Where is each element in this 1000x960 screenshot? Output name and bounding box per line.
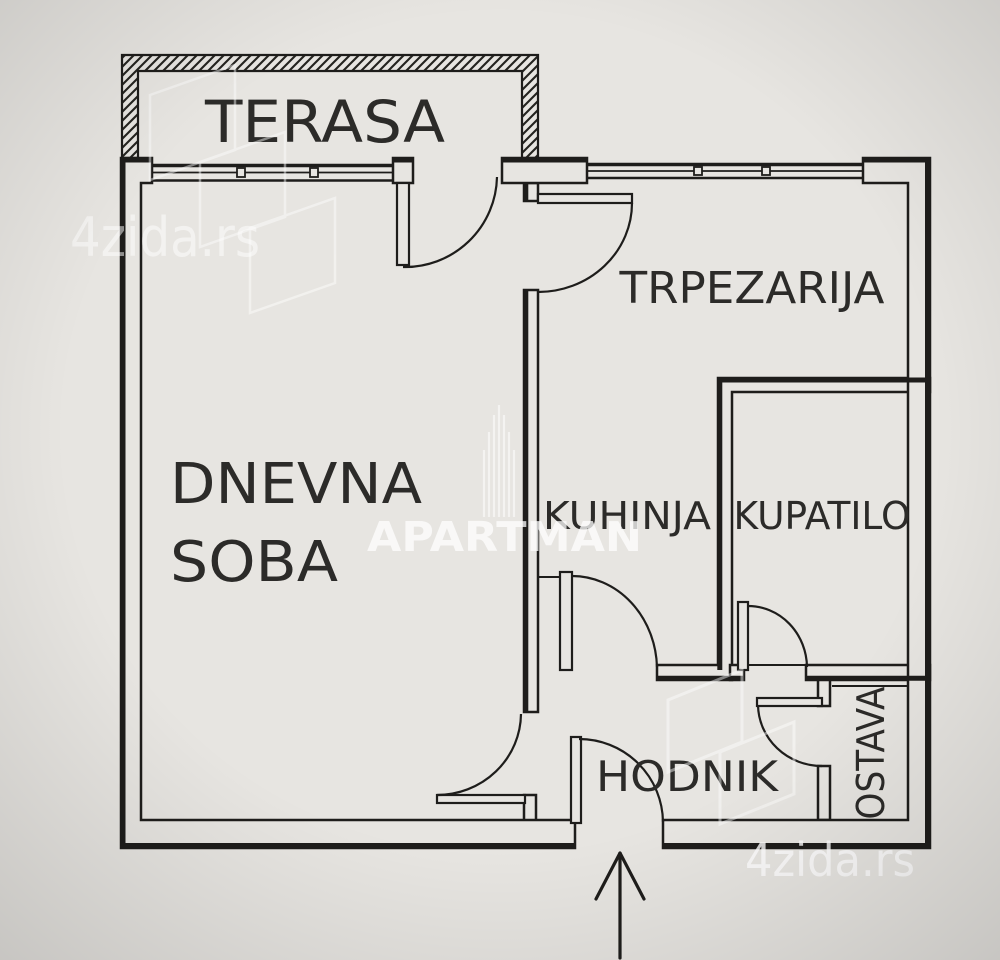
photo-vignette bbox=[0, 0, 1000, 960]
floor-plan-image: TERASA TRPEZARIJA DNEVNA SOBA KUHINJA KU… bbox=[0, 0, 1000, 960]
apartment-floor-plan: TERASA TRPEZARIJA DNEVNA SOBA KUHINJA KU… bbox=[0, 0, 1000, 960]
